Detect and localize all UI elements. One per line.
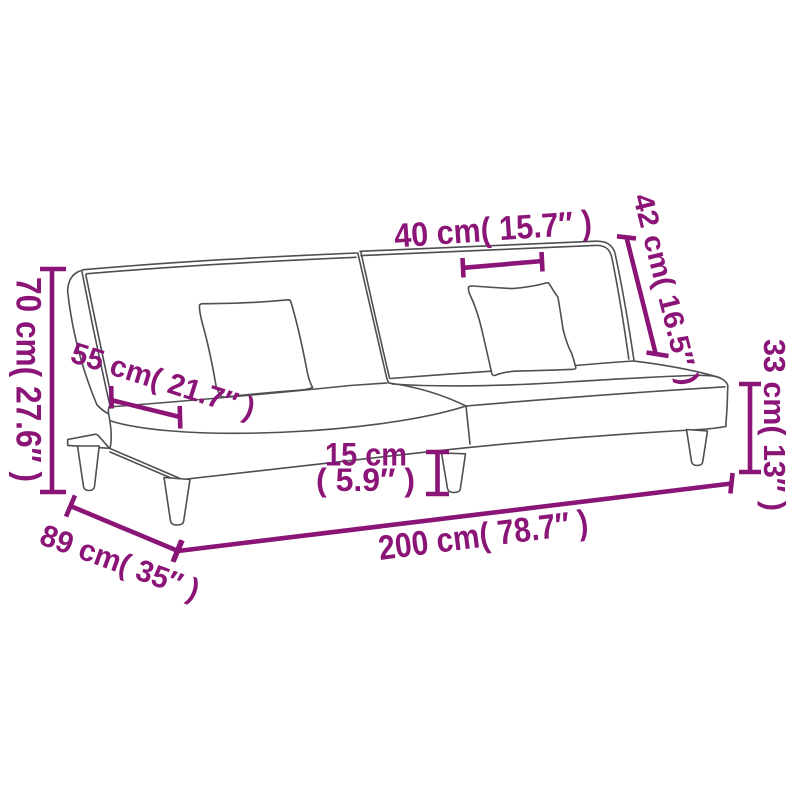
svg-text:( 5.9″ ): ( 5.9″ ) (316, 462, 415, 498)
svg-text:70 cm( 27.6″ ): 70 cm( 27.6″ ) (8, 277, 47, 482)
svg-text:33 cm( 13″ ): 33 cm( 13″ ) (757, 339, 792, 511)
